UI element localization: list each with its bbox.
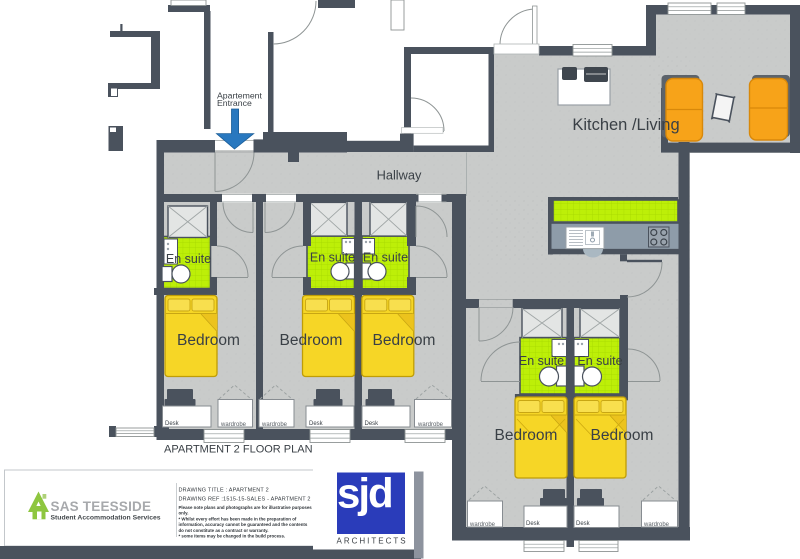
svg-text:Bedroom: Bedroom <box>495 427 558 444</box>
svg-text:Bedroom: Bedroom <box>373 332 436 349</box>
svg-text:wardrobe: wardrobe <box>220 422 247 428</box>
svg-text:En suite: En suite <box>577 354 622 368</box>
svg-text:wardrobe: wardrobe <box>261 422 288 428</box>
svg-text:wardrobe: wardrobe <box>417 422 444 428</box>
svg-text:Desk: Desk <box>309 421 324 427</box>
svg-text:En suite: En suite <box>166 252 211 266</box>
svg-text:DRAWING TITLE : APARTMENT 2: DRAWING TITLE : APARTMENT 2 <box>179 488 269 494</box>
svg-text:En suite: En suite <box>363 251 408 265</box>
svg-text:Student Accommodation Services: Student Accommodation Services <box>51 514 161 521</box>
svg-text:En suite: En suite <box>519 354 564 368</box>
svg-text:sjd: sjd <box>337 470 392 517</box>
svg-text:wardrobe: wardrobe <box>469 522 496 528</box>
svg-text:SAS TEESSIDE: SAS TEESSIDE <box>51 499 152 514</box>
svg-text:only.: only. <box>179 511 189 516</box>
svg-text:Desk: Desk <box>365 421 380 427</box>
svg-text:Kitchen /Living: Kitchen /Living <box>572 116 679 134</box>
svg-text:Bedroom: Bedroom <box>280 332 343 349</box>
svg-text:Desk: Desk <box>165 421 180 427</box>
svg-text:do not constitute as a contrac: do not constitute as a contract or warra… <box>179 528 269 533</box>
svg-text:* Whilst every effort has been: * Whilst every effort has been made in t… <box>179 516 297 521</box>
svg-text:Entrance: Entrance <box>217 98 252 108</box>
svg-text:Bedroom: Bedroom <box>177 332 240 349</box>
svg-text:Desk: Desk <box>526 521 541 527</box>
svg-text:Please note plans and photogra: Please note plans and photographs are fo… <box>179 505 313 510</box>
svg-text:Desk: Desk <box>576 521 591 527</box>
svg-text:APARTMENT 2 FLOOR PLAN: APARTMENT 2 FLOOR PLAN <box>164 444 313 456</box>
svg-text:DRAWING REF :1515-15-SALES -: DRAWING REF :1515-15-SALES - APARTMENT 2 <box>179 497 311 503</box>
svg-text:wardrobe: wardrobe <box>643 522 670 528</box>
svg-text:Hallway: Hallway <box>377 168 422 183</box>
svg-text:information, accuracy cannot b: information, accuracy cannot be guarante… <box>179 522 308 527</box>
svg-text:Bedroom: Bedroom <box>591 427 654 444</box>
svg-text:ARCHITECTS: ARCHITECTS <box>337 537 408 546</box>
svg-text:En suite: En suite <box>310 251 355 265</box>
svg-text:* some items may be changed in: * some items may be changed in the build… <box>179 534 286 539</box>
